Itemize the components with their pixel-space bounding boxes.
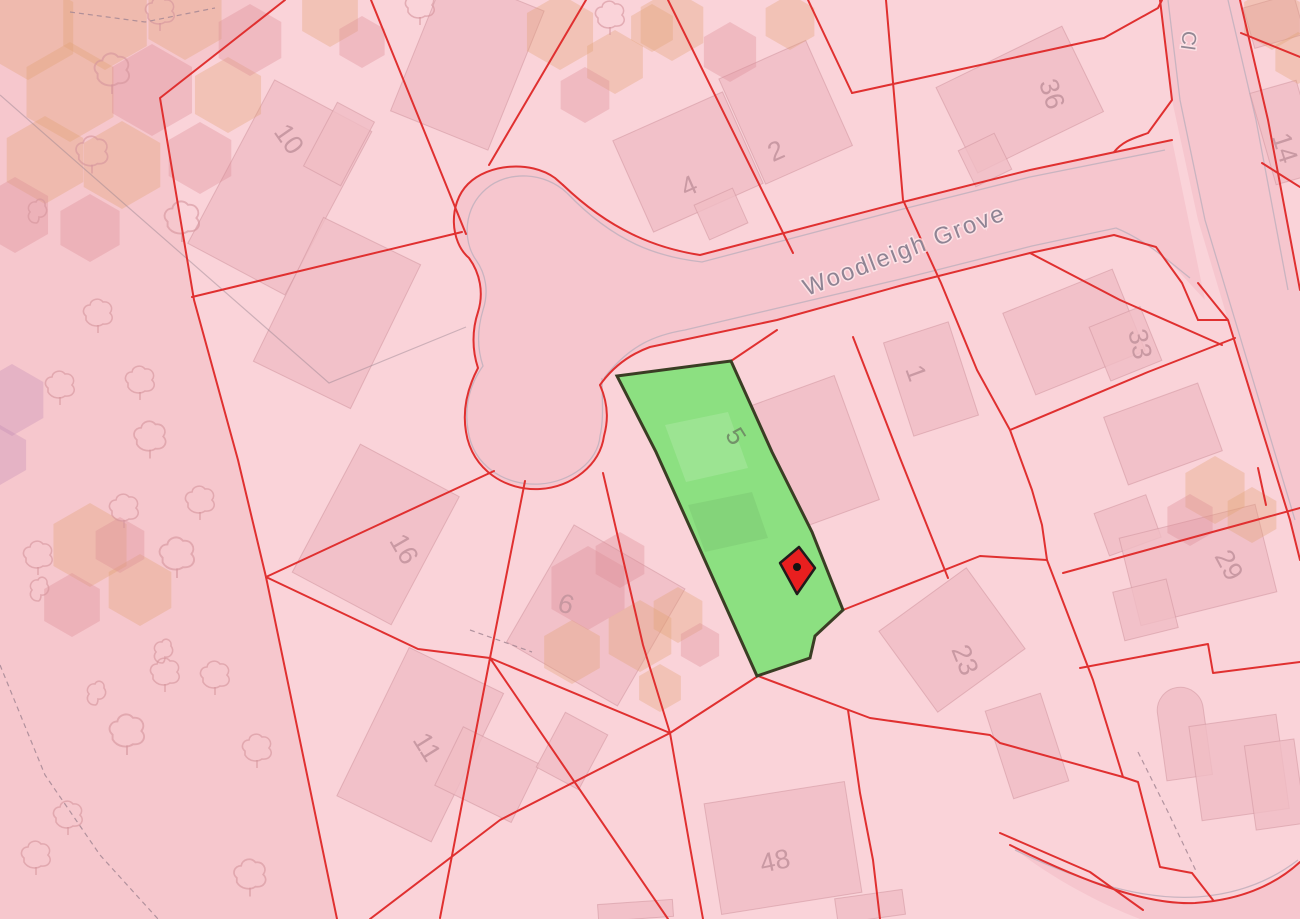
map-viewport[interactable]: Woodleigh Grove Cl 10 4 2 36 14 33 29 16… [0, 0, 1300, 919]
marker-pin-dot [793, 563, 801, 571]
map-canvas[interactable]: Woodleigh Grove Cl 10 4 2 36 14 33 29 16… [0, 0, 1300, 919]
plot-number-48: 48 [757, 843, 793, 879]
plot-number-33: 33 [1122, 326, 1158, 362]
street-label-close-partial: Cl [1176, 29, 1200, 51]
